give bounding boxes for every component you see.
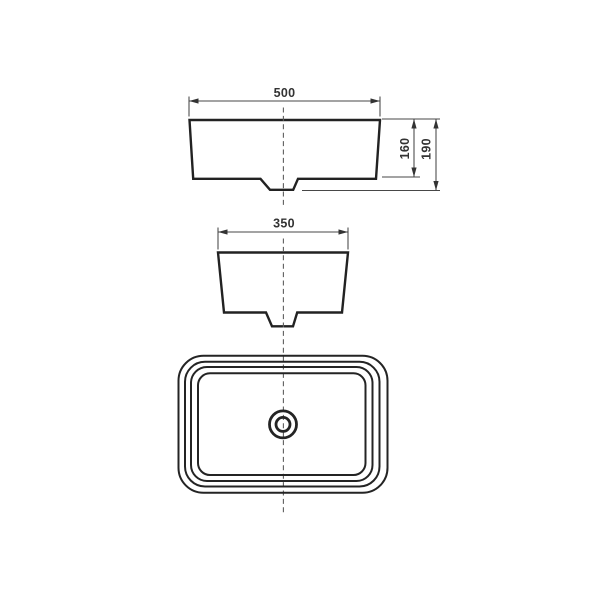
dim-label-overall-height: 190 (420, 138, 434, 160)
arrowhead-up-icon (411, 119, 416, 129)
plan-outline-inner-rim (198, 373, 366, 475)
front-basin-outline (190, 120, 381, 190)
arrowhead-right-icon (371, 98, 381, 103)
dim-label-side-width: 350 (273, 217, 295, 231)
plan-outline-third (191, 367, 373, 481)
dim-label-front-width: 500 (274, 86, 296, 100)
dim-label-basin-height: 160 (398, 138, 412, 160)
arrowhead-left-icon (218, 229, 228, 234)
arrowhead-right-icon (339, 229, 349, 234)
technical-drawing-canvas: 500 160 190 350 (0, 0, 600, 600)
plan-outline-second (185, 362, 380, 487)
arrowhead-down-icon (411, 168, 416, 178)
arrowhead-down-icon (433, 181, 438, 191)
front-elevation-view: 500 160 190 (189, 86, 440, 206)
basin-dimension-drawing: 500 160 190 350 (0, 0, 600, 600)
arrowhead-up-icon (433, 119, 438, 129)
arrowhead-left-icon (189, 98, 199, 103)
